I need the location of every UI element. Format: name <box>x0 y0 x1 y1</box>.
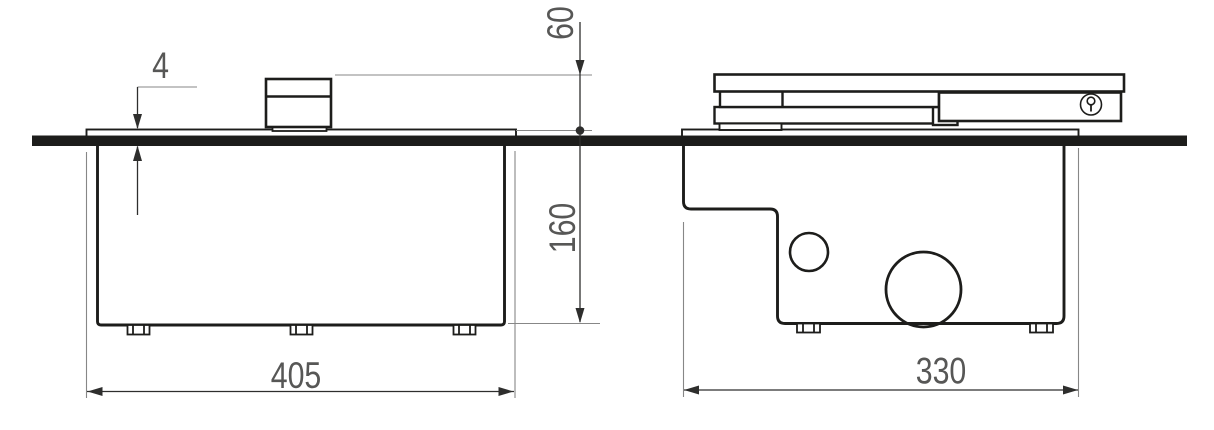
dim-label-60: 60 <box>540 6 582 40</box>
front-view-above-floor <box>682 75 1124 137</box>
dim-label-330: 330 <box>916 351 967 393</box>
dim-label-4: 4 <box>152 45 169 87</box>
drawing-canvas: 4 60 160 405 330 <box>0 0 1214 430</box>
front-view <box>684 139 1065 333</box>
cover-base-block <box>720 124 782 131</box>
dim-60-reference-dot <box>576 126 585 135</box>
dim-160-arrow-down <box>576 308 585 323</box>
foot <box>1030 324 1053 333</box>
technical-drawing: 4 60 160 405 330 <box>0 0 1214 430</box>
foot <box>454 325 476 335</box>
dim-60-arrow-down <box>576 60 585 75</box>
cover-layer-lower <box>715 107 942 124</box>
dim-405-arrow-left <box>88 387 103 396</box>
cover-top-plate <box>715 75 1125 92</box>
side-view-above-floor <box>87 79 517 137</box>
dim-label-160: 160 <box>542 203 584 254</box>
side-view-body <box>98 139 505 325</box>
dim-330-arrow-right <box>1063 386 1078 395</box>
foot <box>128 325 150 335</box>
foot <box>797 324 820 333</box>
foot <box>291 325 313 335</box>
dim-330-arrow-left <box>684 386 699 395</box>
keyhole-icon <box>1081 94 1102 115</box>
front-view-body <box>684 139 1065 324</box>
dim-4-arrow-down <box>133 114 142 129</box>
cover-layer-middle <box>720 91 939 107</box>
side-view <box>98 139 505 335</box>
raised-unit <box>266 79 331 127</box>
dim-405-arrow-right <box>499 387 514 396</box>
dim-label-405: 405 <box>271 355 322 397</box>
